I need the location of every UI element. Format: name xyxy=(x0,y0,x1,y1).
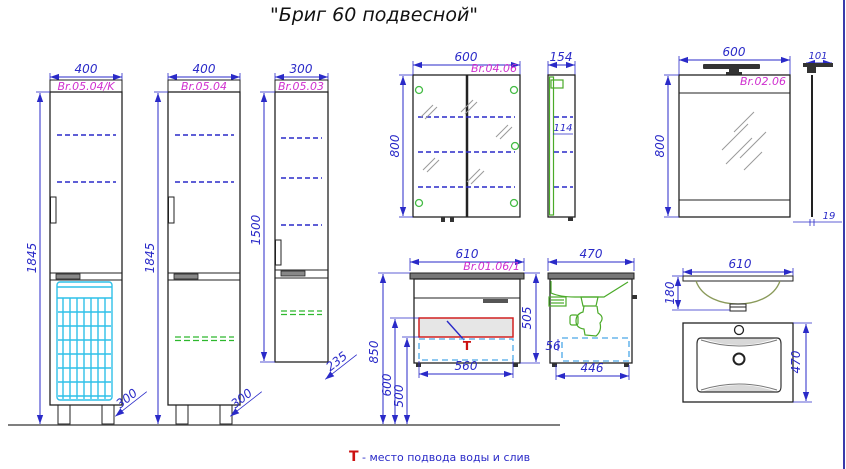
drain-hole xyxy=(734,354,745,365)
vanity-side-body xyxy=(550,279,632,363)
mirror-cabinet-code: Br.04.06 xyxy=(471,62,517,75)
sink-rim xyxy=(683,276,793,281)
cabinet-height-dim: 1845 xyxy=(143,243,157,274)
mirror-cabinet-side-body xyxy=(548,75,575,217)
water-supply-zone xyxy=(419,318,513,337)
vanity-foot xyxy=(416,363,421,367)
countertop xyxy=(410,273,524,279)
page-title: "Бриг 60 подвесной" xyxy=(270,4,478,26)
vanity-width-dim: 610 xyxy=(456,247,479,261)
cabinet-code: Br.05.04 xyxy=(181,80,227,93)
vanity-drawer-width-dim: 560 xyxy=(455,359,478,373)
mirror-cabinet-side-drawing: 154 114 xyxy=(548,50,575,221)
footnote: Т - место подвода воды и слив xyxy=(349,449,530,465)
vanity-foot xyxy=(624,363,629,367)
mirror-front-drawing: 600 Br.02.06 800 xyxy=(653,45,790,217)
mirror-side-drawing: 101 19 xyxy=(793,51,842,226)
vanity-side-drawing: 470 56 446 xyxy=(545,247,637,380)
vanity-gap-dim: 56 xyxy=(545,339,561,353)
lamp-icon xyxy=(703,64,760,69)
mirror-cabinet-front-drawing: 600 Br.04.06 800 xyxy=(388,50,520,222)
cabinet-foot xyxy=(568,217,573,221)
cabinet-k-code: Br.05.04/K xyxy=(58,80,116,93)
drawing-page: "Бриг 60 подвесной" 400 Br.05.04/K 1845 xyxy=(0,0,846,469)
wall-cabinet-width-dim: 300 xyxy=(290,62,313,76)
cabinet-leg xyxy=(220,405,232,424)
vanity-depth-dim: 470 xyxy=(580,247,603,261)
supply-t-mark: Т xyxy=(463,339,472,353)
mirror-height-dim: 800 xyxy=(653,134,667,157)
cabinet-leg xyxy=(102,405,114,424)
cabinet-leg xyxy=(58,405,70,424)
mirror-width-dim: 600 xyxy=(723,45,746,59)
cabinet-foot xyxy=(441,217,445,222)
mirror-code: Br.02.06 xyxy=(740,75,786,88)
cabinet-foot xyxy=(450,217,454,222)
vanity-code: Br.01.06/1 xyxy=(463,260,520,273)
door-handle xyxy=(56,274,80,279)
sink-depth-dim: 470 xyxy=(789,350,803,373)
mirror-cabinet-shelf-dim: 114 xyxy=(553,123,572,134)
mirror-lamp-depth-dim: 101 xyxy=(808,51,827,62)
cabinet-width-dim: 400 xyxy=(193,62,216,76)
mirror-cabinet-depth-dim: 154 xyxy=(550,50,573,64)
vanity-foot xyxy=(513,363,518,367)
cabinet-k-height-dim: 1845 xyxy=(25,243,39,274)
drawing-canvas: "Бриг 60 подвесной" 400 Br.05.04/K 1845 xyxy=(0,0,846,469)
cabinet-leg xyxy=(176,405,188,424)
mirror-body xyxy=(679,75,790,217)
wall-cabinet-height-dim: 1500 xyxy=(249,214,263,245)
footnote-t-symbol: Т xyxy=(349,449,359,465)
vanity-front-drawing: 610 Br.01.06/1 Т 560 505 850 600 500 xyxy=(367,247,540,424)
vanity-front-height-dim: 505 xyxy=(520,307,534,330)
sink-profile-drawing: 610 180 xyxy=(663,257,793,311)
mirror-glass-thickness-dim: 19 xyxy=(823,211,836,222)
vanity-mount-height-dim: 850 xyxy=(367,340,381,363)
sink-bowl-curve xyxy=(696,281,780,304)
sink-bowl-depth-dim: 180 xyxy=(663,281,677,304)
drawer-handle xyxy=(483,299,508,303)
door-handle xyxy=(174,274,198,279)
door-handle xyxy=(281,271,305,276)
wall-cabinet-code: Br.05.03 xyxy=(278,80,324,93)
vanity-drain-height-dim: 500 xyxy=(392,384,406,407)
cabinet-k-body xyxy=(50,92,122,405)
cabinet-k-width-dim: 400 xyxy=(75,62,98,76)
faucet-hole xyxy=(735,326,744,335)
countertop-side xyxy=(548,273,634,279)
cabinet-body xyxy=(168,92,240,405)
vanity-inner-width-dim: 446 xyxy=(581,361,604,375)
wall-cabinet-drawing: 300 Br.05.03 1500 235 xyxy=(249,62,357,379)
tall-cabinet-k-drawing: 400 Br.05.04/K 1845 300 xyxy=(25,62,147,424)
sink-top-view-drawing: 470 xyxy=(683,323,812,402)
wall-cabinet-body xyxy=(275,92,328,362)
handle-side-mark xyxy=(632,295,637,299)
tall-cabinet-drawing: 400 Br.05.04 1845 300 xyxy=(143,62,262,424)
sink-width-dim: 610 xyxy=(729,257,752,271)
footnote-text: - место подвода воды и слив xyxy=(362,451,530,464)
lamp-side-block xyxy=(807,67,816,73)
lamp-side-icon xyxy=(803,63,833,67)
mirror-cabinet-height-dim: 800 xyxy=(388,134,402,157)
